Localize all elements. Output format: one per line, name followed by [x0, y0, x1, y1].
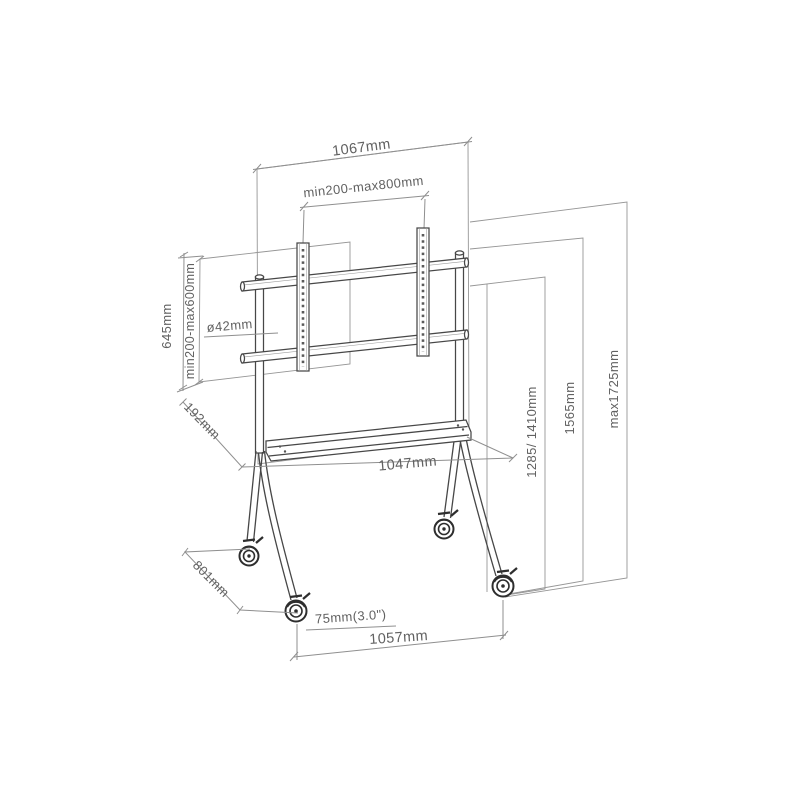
dim-label-vesa-height: min200-max600mm	[183, 263, 197, 379]
dim-label-pole-diameter: ø42mm	[206, 316, 253, 335]
dim-label-base-width: 1057mm	[369, 628, 429, 648]
dim-label-bracket-height: 645mm	[159, 303, 174, 348]
stand-dimension-diagram: 1067mm min200-max800mm 645mm min200-max6…	[0, 0, 800, 800]
dim-label-vesa-width: min200-max800mm	[303, 173, 425, 201]
diagram-page: 1067mm min200-max800mm 645mm min200-max6…	[0, 0, 800, 800]
dim-label-top-width: 1067mm	[331, 136, 391, 159]
caster-front-left	[286, 593, 311, 622]
dim-label-caster-diameter: 75mm(3.0")	[315, 607, 387, 627]
dim-label-shelf-width: 1047mm	[378, 453, 438, 474]
right-vesa-bracket	[417, 228, 429, 356]
dim-label-base-depth: 801mm	[190, 557, 233, 600]
caster-back-right	[435, 510, 459, 539]
left-post	[255, 275, 263, 453]
caster-front-right	[493, 568, 518, 597]
dim-label-max-height: max1725mm	[606, 350, 621, 429]
upper-rail	[241, 258, 469, 291]
vesa-panel-plane	[199, 242, 350, 382]
dim-label-screen-center-height: 1285/ 1410mm	[524, 386, 539, 478]
caster-back-left	[240, 537, 264, 566]
left-vesa-bracket	[297, 243, 309, 371]
dim-label-mid-height: 1565mm	[562, 382, 577, 435]
dim-vesa-width	[300, 191, 429, 243]
lower-rail	[241, 330, 469, 363]
height-dimension-planes	[470, 202, 627, 597]
dimension-labels: 1067mm min200-max800mm 645mm min200-max6…	[159, 136, 621, 648]
dim-label-shelf-depth: 192mm	[181, 399, 223, 442]
shelf	[266, 420, 471, 461]
